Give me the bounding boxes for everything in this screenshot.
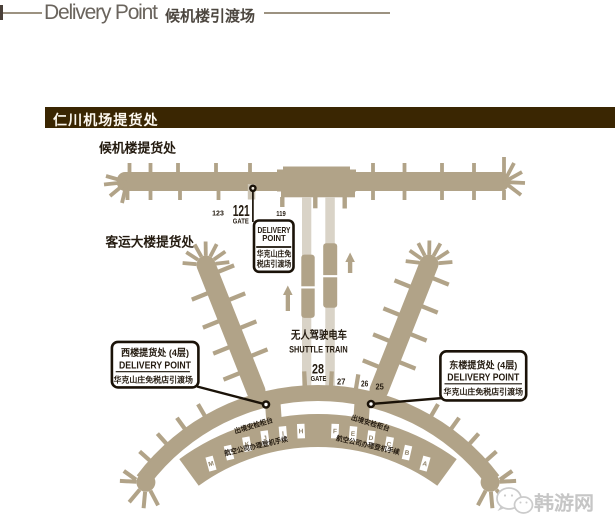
svg-text:华克山庄免税店引渡场: 华克山庄免税店引渡场 — [444, 386, 524, 396]
svg-text:客运大楼提货处: 客运大楼提货处 — [106, 235, 195, 250]
svg-text:DELIVERY POINT: DELIVERY POINT — [119, 361, 191, 372]
svg-text:27: 27 — [337, 377, 346, 386]
svg-text:28: 28 — [312, 361, 324, 376]
svg-text:西楼提货处 (4层): 西楼提货处 (4层) — [121, 347, 189, 359]
svg-text:H: H — [299, 428, 304, 435]
svg-text:华克山庄免税店引渡场: 华克山庄免税店引渡场 — [113, 374, 193, 384]
svg-text:东楼提货处 (4层): 东楼提货处 (4层) — [449, 359, 517, 371]
svg-text:25: 25 — [375, 383, 384, 392]
svg-text:POINT: POINT — [262, 233, 286, 243]
svg-text:119: 119 — [276, 209, 286, 218]
svg-text:SHUTTLE TRAIN: SHUTTLE TRAIN — [289, 345, 348, 356]
svg-text:26: 26 — [361, 379, 369, 388]
svg-text:无人驾驶电车: 无人驾驶电车 — [290, 327, 347, 341]
svg-text:GATE: GATE — [233, 218, 249, 225]
svg-text:GATE: GATE — [311, 376, 327, 383]
svg-text:DELIVERY POINT: DELIVERY POINT — [447, 373, 519, 384]
svg-text:华克山庄免: 华克山庄免 — [257, 249, 292, 259]
svg-text:韩游网: 韩游网 — [534, 492, 594, 515]
svg-text:税店引渡场: 税店引渡场 — [257, 258, 292, 268]
svg-text:123: 123 — [212, 208, 224, 217]
svg-text:候机楼提货处: 候机楼提货处 — [99, 141, 177, 156]
